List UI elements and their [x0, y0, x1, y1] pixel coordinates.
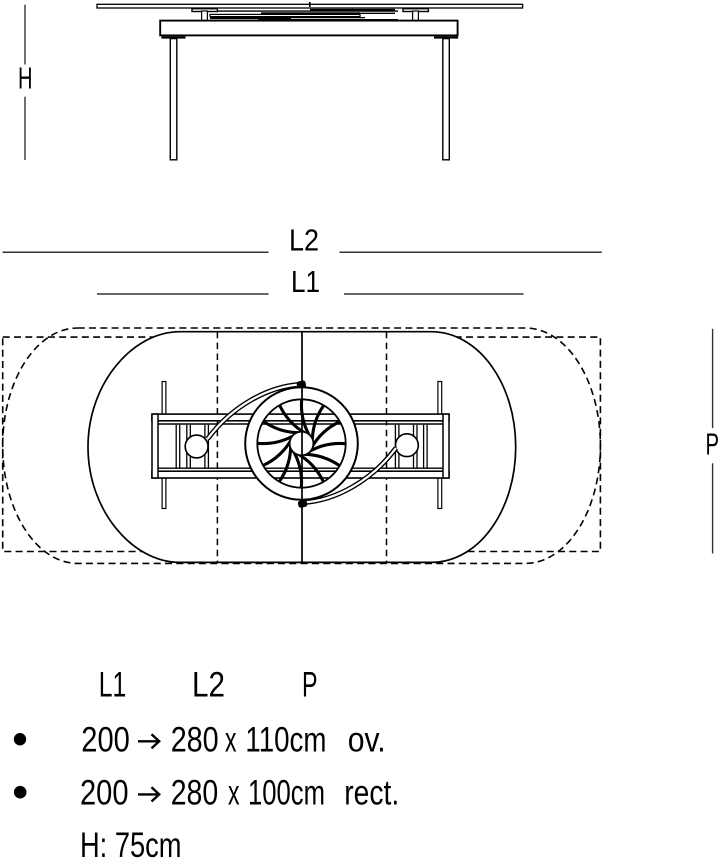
svg-text:P: P	[302, 666, 318, 705]
svg-text:H: 75cm: H: 75cm	[80, 826, 182, 865]
svg-text:200: 200	[81, 720, 130, 759]
svg-text:x: x	[228, 773, 240, 812]
svg-text:100cm: 100cm	[248, 773, 325, 812]
svg-text:H: H	[18, 61, 33, 96]
svg-text:280: 280	[171, 773, 219, 812]
svg-text:ov.: ov.	[348, 720, 386, 759]
svg-text:L1: L1	[291, 264, 320, 299]
svg-text:L1: L1	[99, 666, 127, 705]
svg-text:200: 200	[80, 773, 129, 812]
svg-text:L2: L2	[289, 222, 319, 257]
svg-text:rect.: rect.	[344, 773, 399, 812]
svg-text:110cm: 110cm	[245, 720, 326, 759]
svg-text:280: 280	[171, 720, 219, 759]
svg-text:P: P	[706, 427, 720, 462]
svg-text:x: x	[225, 720, 237, 759]
svg-text:L2: L2	[192, 666, 225, 705]
